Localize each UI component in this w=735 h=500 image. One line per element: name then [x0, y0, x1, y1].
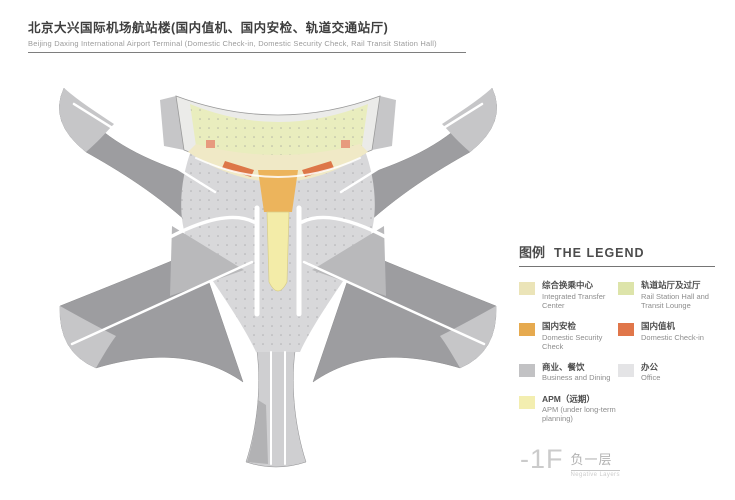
legend: 图例 THE LEGEND 综合换乘中心 Integrated Transfer… [519, 242, 715, 423]
legend-label-zh: 综合换乘中心 [542, 280, 618, 291]
checkin-accent-right [341, 140, 350, 148]
legend-swatch [618, 323, 634, 336]
legend-grid: 综合换乘中心 Integrated Transfer Center 轨道站厅及过… [519, 280, 715, 423]
legend-label-en: Office [641, 373, 660, 382]
legend-item-office: 办公 Office [618, 362, 715, 383]
legend-label-zh: 轨道站厅及过厅 [641, 280, 715, 291]
legend-label-en: Rail Station Hall and Transit Lounge [641, 292, 715, 310]
checkin-accent-left [206, 140, 215, 148]
floor-name-en: Negative Layers [571, 472, 620, 478]
zone-apm [267, 212, 289, 291]
legend-label-en: Domestic Check-in [641, 333, 704, 342]
legend-swatch [618, 364, 634, 377]
floor-indicator: -1F 负一层 Negative Layers [520, 446, 620, 478]
floor-name-zh: 负一层 [571, 449, 620, 471]
floor-code: -1F [520, 446, 564, 473]
legend-label-en: Business and Dining [542, 373, 610, 382]
legend-label-en: APM (under long-term planning) [542, 405, 618, 423]
legend-swatch [618, 282, 634, 295]
legend-label-zh: APM（远期） [542, 394, 618, 405]
legend-swatch [519, 396, 535, 409]
legend-label-zh: 商业、餐饮 [542, 362, 610, 373]
legend-item-domestic-security-check: 国内安检 Domestic Security Check [519, 321, 618, 351]
legend-label-en: Domestic Security Check [542, 333, 618, 351]
legend-title: 图例 THE LEGEND [519, 242, 715, 267]
pier-bottom-dark-edge [247, 400, 268, 464]
legend-label-en: Integrated Transfer Center [542, 292, 618, 310]
legend-label-zh: 国内值机 [641, 321, 704, 332]
legend-item-rail-station-hall: 轨道站厅及过厅 Rail Station Hall and Transit Lo… [618, 280, 715, 310]
legend-swatch [519, 364, 535, 377]
legend-swatch [519, 282, 535, 295]
legend-label-zh: 办公 [641, 362, 660, 373]
legend-item-integrated-transfer-center: 综合换乘中心 Integrated Transfer Center [519, 280, 618, 310]
legend-title-zh: 图例 [519, 242, 545, 261]
legend-title-en: THE LEGEND [554, 246, 645, 260]
legend-label-zh: 国内安检 [542, 321, 618, 332]
legend-item-domestic-checkin: 国内值机 Domestic Check-in [618, 321, 715, 351]
legend-item-business-dining: 商业、餐饮 Business and Dining [519, 362, 618, 383]
legend-item-apm: APM（远期） APM (under long-term planning) [519, 394, 618, 424]
legend-swatch [519, 323, 535, 336]
